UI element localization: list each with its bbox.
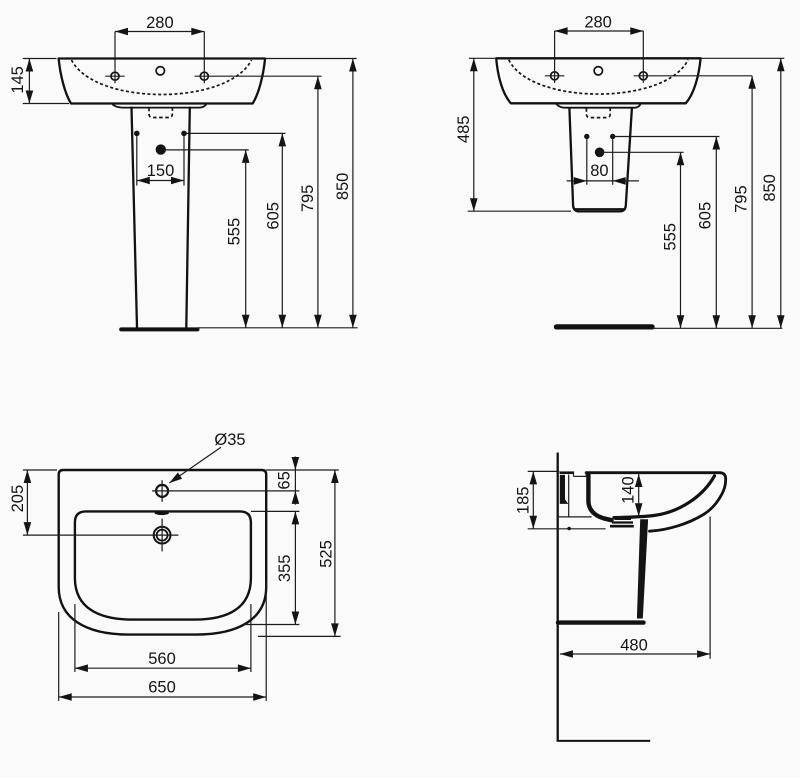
svg-text:560: 560: [148, 650, 176, 668]
svg-text:280: 280: [146, 14, 174, 32]
svg-text:140: 140: [619, 476, 637, 504]
svg-text:650: 650: [148, 679, 176, 697]
svg-text:185: 185: [515, 487, 533, 515]
svg-text:150: 150: [147, 162, 175, 180]
svg-text:795: 795: [733, 185, 751, 213]
svg-text:850: 850: [334, 173, 352, 201]
svg-text:605: 605: [264, 202, 282, 230]
svg-text:65: 65: [276, 471, 294, 489]
svg-text:605: 605: [697, 202, 715, 230]
svg-text:355: 355: [276, 555, 294, 583]
svg-text:80: 80: [590, 162, 608, 180]
svg-text:850: 850: [761, 174, 779, 202]
svg-text:Ø35: Ø35: [214, 431, 245, 449]
svg-text:280: 280: [584, 13, 612, 31]
svg-text:205: 205: [9, 485, 27, 513]
svg-text:480: 480: [620, 637, 648, 655]
svg-text:145: 145: [9, 66, 27, 94]
svg-text:555: 555: [661, 223, 679, 251]
svg-text:485: 485: [455, 116, 473, 144]
svg-text:525: 525: [317, 540, 335, 568]
svg-text:795: 795: [299, 185, 317, 213]
svg-text:555: 555: [225, 218, 243, 246]
